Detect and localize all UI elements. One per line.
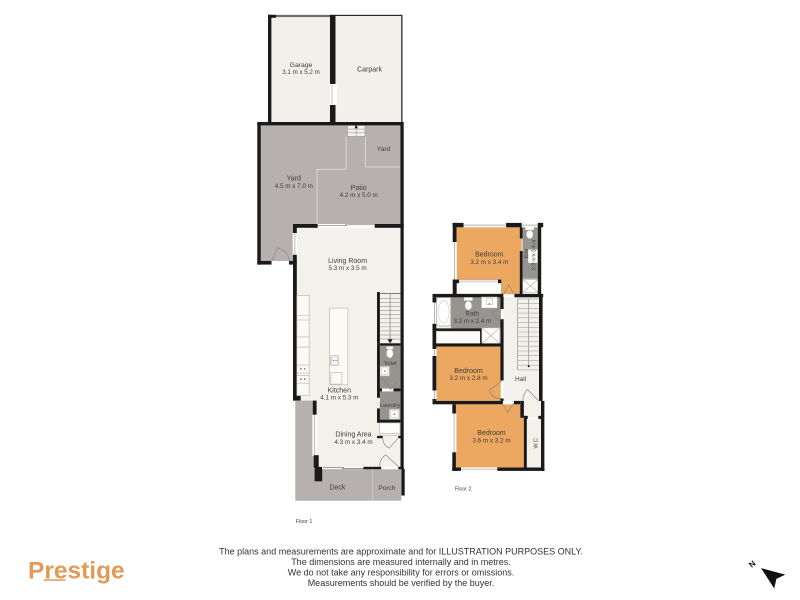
- svg-text:Kitchen: Kitchen: [328, 387, 351, 394]
- svg-text:3.2 m x 3.4 m: 3.2 m x 3.4 m: [470, 259, 508, 266]
- svg-text:Measurements should be verifie: Measurements should be verified by the b…: [308, 578, 495, 588]
- svg-text:Patio: Patio: [351, 185, 367, 192]
- svg-text:Floor 1: Floor 1: [296, 519, 313, 525]
- svg-text:3.1 m x 5.2 m: 3.1 m x 5.2 m: [282, 69, 319, 76]
- svg-text:Carpark: Carpark: [357, 66, 382, 73]
- svg-text:Living Room: Living Room: [328, 258, 367, 265]
- svg-text:Floor 2: Floor 2: [455, 487, 472, 493]
- svg-text:W.C: W.C: [534, 438, 540, 448]
- svg-text:Bedroom: Bedroom: [477, 430, 506, 437]
- svg-text:0.9 m x 3.4 m: 0.9 m x 3.4 m: [531, 240, 537, 270]
- svg-text:Bath: Bath: [466, 311, 480, 318]
- svg-text:Bedroom: Bedroom: [475, 252, 504, 259]
- svg-text:Prestige: Prestige: [28, 557, 125, 584]
- svg-text:4.3 m x 3.4 m: 4.3 m x 3.4 m: [334, 439, 372, 446]
- svg-text:Hall: Hall: [515, 376, 527, 383]
- svg-text:5.3 m x 3.5 m: 5.3 m x 3.5 m: [329, 265, 367, 272]
- svg-text:3.2 m x 2.8 m: 3.2 m x 2.8 m: [449, 375, 487, 382]
- svg-text:4.2 m x 5.0 m: 4.2 m x 5.0 m: [340, 192, 378, 199]
- svg-text:Dining Area: Dining Area: [335, 432, 371, 439]
- svg-text:Porch: Porch: [378, 485, 395, 492]
- svg-text:3.2 m x 2.4 m: 3.2 m x 2.4 m: [454, 318, 491, 325]
- svg-text:Garage: Garage: [290, 62, 313, 69]
- svg-text:We do not take any responsibil: We do not take any responsibility for er…: [288, 567, 514, 577]
- svg-text:3.6 m x 3.2 m: 3.6 m x 3.2 m: [472, 437, 510, 444]
- svg-text:4.5 m x 7.0 m: 4.5 m x 7.0 m: [275, 183, 313, 190]
- svg-text:Laundry: Laundry: [380, 403, 400, 409]
- svg-text:Yard: Yard: [377, 146, 391, 153]
- svg-text:Ens: Ens: [524, 249, 530, 259]
- svg-text:Toilet: Toilet: [383, 361, 397, 367]
- svg-text:The dimensions are measured in: The dimensions are measured internally a…: [291, 557, 511, 567]
- svg-text:Bedroom: Bedroom: [454, 368, 483, 375]
- svg-text:The plans and measurements are: The plans and measurements are approxima…: [219, 547, 583, 557]
- svg-text:Yard: Yard: [287, 175, 301, 182]
- svg-text:4.1 m x 5.3 m: 4.1 m x 5.3 m: [320, 395, 358, 402]
- svg-text:Deck: Deck: [329, 484, 345, 491]
